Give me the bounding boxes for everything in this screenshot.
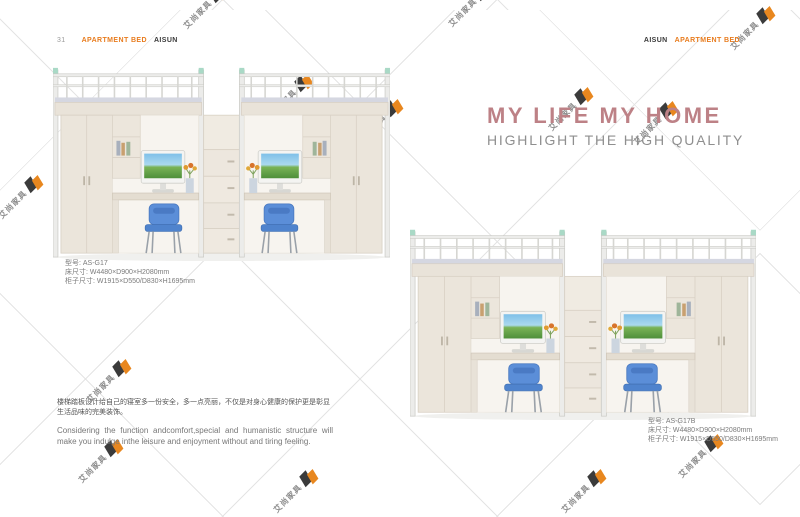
category-label: APARTMENT BED bbox=[82, 37, 147, 44]
cabinet-size: 柜子尺寸: W1915×D550/D830×H1695mm bbox=[648, 435, 778, 444]
product-spec-left: 型号: AS-G17 床尺寸: W4480×D900×H2080mm 柜子尺寸:… bbox=[65, 259, 195, 286]
brand-label: AISUN bbox=[154, 37, 178, 44]
page-number: 31 bbox=[57, 37, 66, 44]
headline-title: MY LIFE MY HOME bbox=[487, 103, 744, 129]
bunk-bed-set-left-illustration bbox=[53, 60, 390, 262]
category-label: APARTMENT BED bbox=[675, 37, 740, 44]
bed-size: 床尺寸: W4480×D900×H2080mm bbox=[648, 426, 778, 435]
brand-label: AISUN bbox=[644, 37, 668, 44]
header-left: 31APARTMENT BEDAISUN bbox=[57, 37, 178, 44]
headline-subtitle: HIGHLIGHT THE HIGH QUALITY bbox=[487, 132, 744, 148]
description-chinese: 楼梯踏板设计给自己的寝室多一份安全，多一点亮丽，不仅是对身心健康的保护更是彰显生… bbox=[57, 398, 333, 418]
catalog-page: 艾尚家具艾尚家具艾尚家具艾尚家具艾尚家具艾尚家具艾尚家具艾尚家具艾尚家具艾尚家具… bbox=[0, 0, 800, 517]
headline: MY LIFE MY HOME HIGHLIGHT THE HIGH QUALI… bbox=[487, 103, 744, 148]
product-spec-right: 型号: AS-G17B 床尺寸: W4480×D900×H2080mm 柜子尺寸… bbox=[648, 417, 778, 444]
header-right: AISUNAPARTMENT BED bbox=[644, 37, 740, 44]
description-block: 楼梯踏板设计给自己的寝室多一份安全，多一点亮丽，不仅是对身心健康的保护更是彰显生… bbox=[57, 398, 333, 447]
description-english: Considering the function andcomfort,spec… bbox=[57, 425, 333, 447]
model-number: 型号: AS-G17 bbox=[65, 259, 195, 268]
cabinet-size: 柜子尺寸: W1915×D550/D830×H1695mm bbox=[65, 277, 195, 286]
model-number: 型号: AS-G17B bbox=[648, 417, 778, 426]
bunk-bed-set-right-illustration bbox=[410, 222, 756, 421]
bed-size: 床尺寸: W4480×D900×H2080mm bbox=[65, 268, 195, 277]
